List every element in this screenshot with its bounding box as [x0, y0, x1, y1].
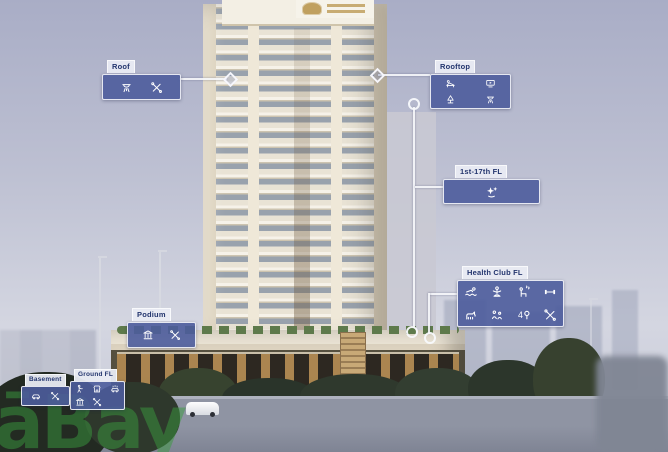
building-sign-text	[327, 4, 365, 7]
callout-floors-label: 1st-17th FL	[455, 165, 507, 178]
pool-icon	[464, 285, 478, 299]
tools-icon	[169, 329, 181, 341]
sauna-icon	[517, 285, 531, 299]
tower-core	[294, 28, 310, 340]
sparkle-icon	[484, 184, 499, 199]
callout-rooftop: Rooftop	[430, 56, 511, 109]
lobby-icon	[75, 384, 85, 394]
connector-line-floors-vertical	[413, 107, 415, 328]
cinema-icon	[485, 78, 496, 89]
tools-icon	[150, 81, 163, 94]
callout-basement-label: Basement	[25, 374, 66, 386]
foreground-blur	[596, 356, 668, 452]
tools-icon	[543, 308, 557, 322]
annotated-building-render: āBay Roof Rooftop 1st-17th FL Health Clu…	[0, 0, 668, 452]
callout-ground: Ground FL	[70, 363, 125, 410]
connector-line-healthclub	[429, 293, 457, 295]
pet-icon	[464, 308, 478, 322]
carwash-icon	[110, 384, 120, 394]
callout-rooftop-icons	[430, 74, 511, 109]
callout-podium-label: Podium	[132, 308, 171, 321]
car-icon	[31, 391, 41, 401]
connector-line-roof	[179, 78, 227, 80]
callout-rooftop-label: Rooftop	[435, 60, 475, 73]
connector-line-healthclub-vertical	[428, 293, 430, 334]
lounge-icon	[445, 78, 456, 89]
building-sign	[296, 0, 374, 18]
building-sign-emblem	[302, 2, 322, 15]
bbq-icon	[485, 94, 496, 105]
gym-icon	[543, 285, 557, 299]
retail-icon	[92, 384, 102, 394]
connector-line-floors	[415, 186, 443, 188]
columns-icon	[75, 397, 85, 407]
tools-icon	[50, 391, 60, 401]
callout-podium: Podium	[127, 304, 196, 348]
callout-podium-icons	[127, 322, 196, 348]
callout-basement-icons	[21, 386, 70, 406]
callout-roof-label: Roof	[107, 60, 135, 73]
columns-icon	[142, 329, 154, 341]
callout-roof-icons	[102, 74, 181, 100]
callout-health-club: Health Club FL 4	[457, 262, 564, 327]
kids-icon	[490, 308, 504, 322]
connector-marker-floors-bottom	[406, 326, 418, 338]
callout-basement: Basement	[21, 368, 70, 406]
callout-floors-1-17: 1st-17th FL	[443, 161, 540, 204]
svg-text:4: 4	[518, 310, 523, 320]
callout-ground-icons	[70, 381, 125, 410]
callout-floors-icons	[443, 179, 540, 204]
garden-icon	[445, 94, 456, 105]
connector-line-rooftop	[378, 74, 430, 76]
callout-health-club-icons: 4	[457, 280, 564, 327]
padel-4-icon: 4	[517, 308, 531, 322]
callout-roof: Roof	[102, 56, 181, 100]
bbq-icon	[120, 81, 133, 94]
tools-icon	[92, 397, 102, 407]
connector-marker-floors-top	[408, 98, 420, 110]
yoga-icon	[490, 285, 504, 299]
white-car	[186, 402, 219, 415]
callout-ground-label: Ground FL	[74, 369, 117, 381]
connector-marker-healthclub	[424, 332, 436, 344]
callout-health-club-label: Health Club FL	[462, 266, 528, 279]
